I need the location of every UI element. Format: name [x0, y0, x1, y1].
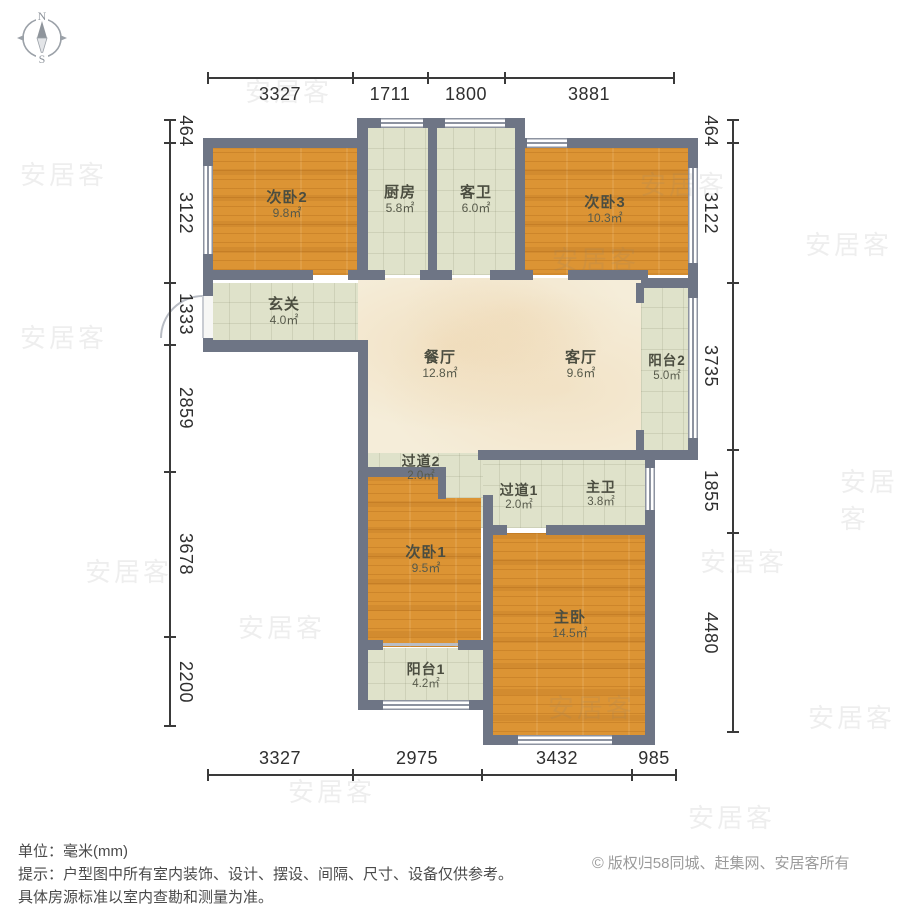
dim-tick [675, 769, 677, 781]
dim-tick [727, 142, 739, 144]
dim-tick [727, 449, 739, 451]
room-name: 厨房 [384, 184, 416, 201]
watermark-text: 安居客 [688, 798, 775, 835]
room-area: 12.8㎡ [422, 367, 457, 381]
window [645, 468, 655, 510]
room-label-guest-bath: 客卫 6.0㎡ [460, 184, 492, 216]
room-area: 9.5㎡ [405, 562, 446, 576]
footer-notes: 单位：毫米(mm) 提示：户型图中所有室内装饰、设计、摆设、间隔、尺寸、设备仅供… [18, 840, 578, 909]
room-name: 阳台1 [407, 661, 446, 677]
dim-tick [164, 344, 176, 346]
watermark-text: 安居客 [805, 225, 892, 262]
watermark-text: 安居客 [85, 552, 172, 589]
room-name: 次卧3 [584, 194, 625, 211]
window [688, 168, 698, 263]
watermark-text: 安居客 [700, 542, 787, 579]
dim-label: 464 [176, 91, 196, 171]
room-label-dining: 餐厅 12.8㎡ [422, 349, 457, 381]
dim-line-bottom [208, 774, 677, 776]
wall-segment [203, 270, 313, 280]
window [445, 118, 505, 128]
compass-icon: N S [14, 8, 70, 64]
wall-segment [483, 495, 493, 745]
dim-tick [207, 769, 209, 781]
dim-tick [481, 769, 483, 781]
dim-label: 3432 [536, 748, 578, 769]
room-label-corridor2: 过道2 2.0㎡ [402, 453, 441, 483]
room-name: 过道1 [500, 482, 539, 498]
room-label-balcony1: 阳台1 4.2㎡ [407, 661, 446, 691]
room-label-master-bath: 主卫 3.8㎡ [586, 479, 616, 509]
dim-label: 3122 [701, 173, 721, 253]
room-area: 4.0㎡ [268, 314, 300, 328]
room-label-foyer: 玄关 4.0㎡ [268, 296, 300, 328]
room-area: 10.3㎡ [584, 212, 625, 226]
watermark-text: 安居客 [808, 698, 895, 735]
svg-text:N: N [38, 9, 47, 23]
room-label-living: 客厅 9.6㎡ [565, 349, 597, 381]
watermark-text: 安居客 [840, 462, 900, 536]
room-name: 客卫 [460, 184, 492, 201]
dim-tick [727, 532, 739, 534]
room-area: 6.0㎡ [460, 202, 492, 216]
dim-label: 3881 [568, 84, 610, 105]
dim-tick [631, 769, 633, 781]
room-area: 9.6㎡ [565, 367, 597, 381]
room-name: 主卫 [586, 479, 616, 495]
dim-tick [673, 72, 675, 84]
dim-line-right [732, 120, 734, 733]
dim-label: 3678 [176, 514, 196, 594]
wall-segment [203, 138, 368, 148]
room-name: 次卧1 [405, 544, 446, 561]
dim-label: 3327 [259, 748, 301, 769]
wall-segment [515, 270, 533, 280]
copyright-icon: © [592, 855, 604, 872]
dim-label: 985 [638, 748, 670, 769]
wall-segment [428, 118, 437, 280]
dim-tick [352, 72, 354, 84]
room-label-balcony2: 阳台2 5.0㎡ [648, 353, 686, 383]
floor-living-dining [358, 278, 643, 458]
window [381, 118, 423, 128]
dim-label: 3735 [701, 326, 721, 406]
watermark-text: 安居客 [288, 772, 375, 809]
dim-tick [727, 731, 739, 733]
dim-label: 2859 [176, 368, 196, 448]
wall-segment [437, 270, 452, 280]
room-label-master-bedroom: 主卧 14.5㎡ [552, 609, 587, 641]
room-area: 14.5㎡ [552, 627, 587, 641]
wall-segment [568, 270, 648, 280]
wall-segment [357, 270, 385, 280]
hint-note-line2: 具体房源标准以室内查勘和测量为准。 [18, 886, 578, 909]
dim-tick [164, 282, 176, 284]
window [203, 166, 213, 254]
copyright: ©版权归58同城、赶集网、安居客所有 [592, 852, 849, 873]
dim-label: 464 [701, 91, 721, 171]
room-name: 主卧 [552, 609, 587, 626]
wall-segment [458, 640, 493, 650]
window [688, 298, 698, 438]
dim-tick [427, 72, 429, 84]
dim-tick [164, 119, 176, 121]
room-area: 9.8㎡ [266, 207, 307, 221]
dim-label: 1855 [701, 451, 721, 531]
dim-label: 2200 [176, 642, 196, 722]
room-name: 过道2 [402, 453, 441, 469]
dim-tick [164, 636, 176, 638]
copyright-text: 版权归58同城、赶集网、安居客所有 [608, 855, 850, 872]
wall-segment [203, 340, 368, 352]
dim-label: 3327 [259, 84, 301, 105]
dim-tick [504, 72, 506, 84]
dim-tick [164, 142, 176, 144]
dim-tick [164, 725, 176, 727]
wall-segment [357, 118, 368, 280]
watermark-text: 安居客 [20, 155, 107, 192]
wall-segment [358, 340, 368, 710]
dim-tick [727, 282, 739, 284]
dim-label: 4480 [701, 593, 721, 673]
wall-segment [358, 640, 383, 650]
window [383, 700, 469, 710]
wall-segment [420, 270, 437, 280]
room-name: 客厅 [565, 349, 597, 366]
watermark-text: 安居客 [20, 318, 107, 355]
room-area: 5.8㎡ [384, 202, 416, 216]
room-label-bedroom3: 次卧3 10.3㎡ [584, 194, 625, 226]
room-name: 玄关 [268, 296, 300, 313]
hint-note-line1: 提示：户型图中所有室内装饰、设计、摆设、间隔、尺寸、设备仅供参考。 [18, 863, 578, 886]
room-name: 餐厅 [422, 349, 457, 366]
unit-note: 单位：毫米(mm) [18, 840, 578, 863]
wall-segment [546, 525, 655, 535]
room-label-bedroom2: 次卧2 9.8㎡ [266, 189, 307, 221]
dim-tick [164, 471, 176, 473]
wall-segment [636, 283, 644, 303]
dim-label: 1800 [445, 84, 487, 105]
dim-tick [352, 769, 354, 781]
window [518, 735, 612, 745]
balcony1-slider-line [383, 643, 458, 646]
wall-segment [636, 430, 644, 452]
watermark-text: 安居客 [238, 608, 325, 645]
room-label-corridor1: 过道1 2.0㎡ [500, 482, 539, 512]
wall-segment [478, 450, 650, 460]
room-name: 阳台2 [648, 353, 686, 369]
room-name: 次卧2 [266, 189, 307, 206]
room-area: 3.8㎡ [586, 496, 616, 509]
dim-label: 1333 [176, 274, 196, 354]
room-area: 2.0㎡ [402, 470, 441, 483]
wall-segment [493, 525, 507, 535]
dim-label: 3122 [176, 173, 196, 253]
wall-segment [515, 118, 525, 280]
dim-label: 2975 [396, 748, 438, 769]
room-area: 2.0㎡ [500, 499, 539, 512]
wall-segment [490, 270, 515, 280]
dim-tick [727, 119, 739, 121]
window [527, 138, 567, 148]
dim-line-top [208, 77, 675, 79]
room-area: 5.0㎡ [648, 370, 686, 383]
svg-text:S: S [39, 52, 46, 64]
room-label-bedroom1: 次卧1 9.5㎡ [405, 544, 446, 576]
dim-label: 1711 [370, 84, 411, 105]
floorplan-page: { "compass": {"north": "N", "south": "S"… [0, 0, 900, 900]
dim-tick [207, 72, 209, 84]
room-area: 4.2㎡ [407, 678, 446, 691]
room-label-kitchen: 厨房 5.8㎡ [384, 184, 416, 216]
